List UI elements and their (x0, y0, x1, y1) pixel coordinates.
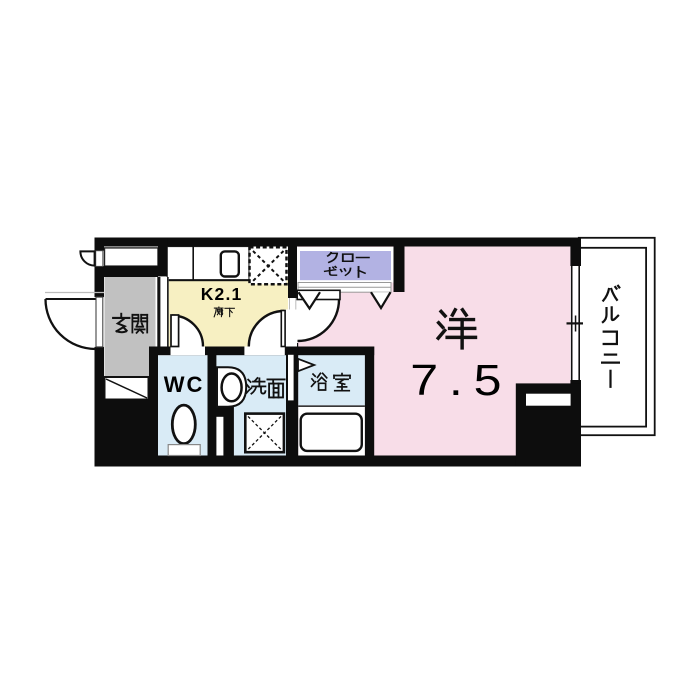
svg-text:7.5: 7.5 (410, 355, 512, 404)
svg-text:WC: WC (164, 372, 205, 397)
svg-text:K2.1: K2.1 (201, 284, 243, 304)
